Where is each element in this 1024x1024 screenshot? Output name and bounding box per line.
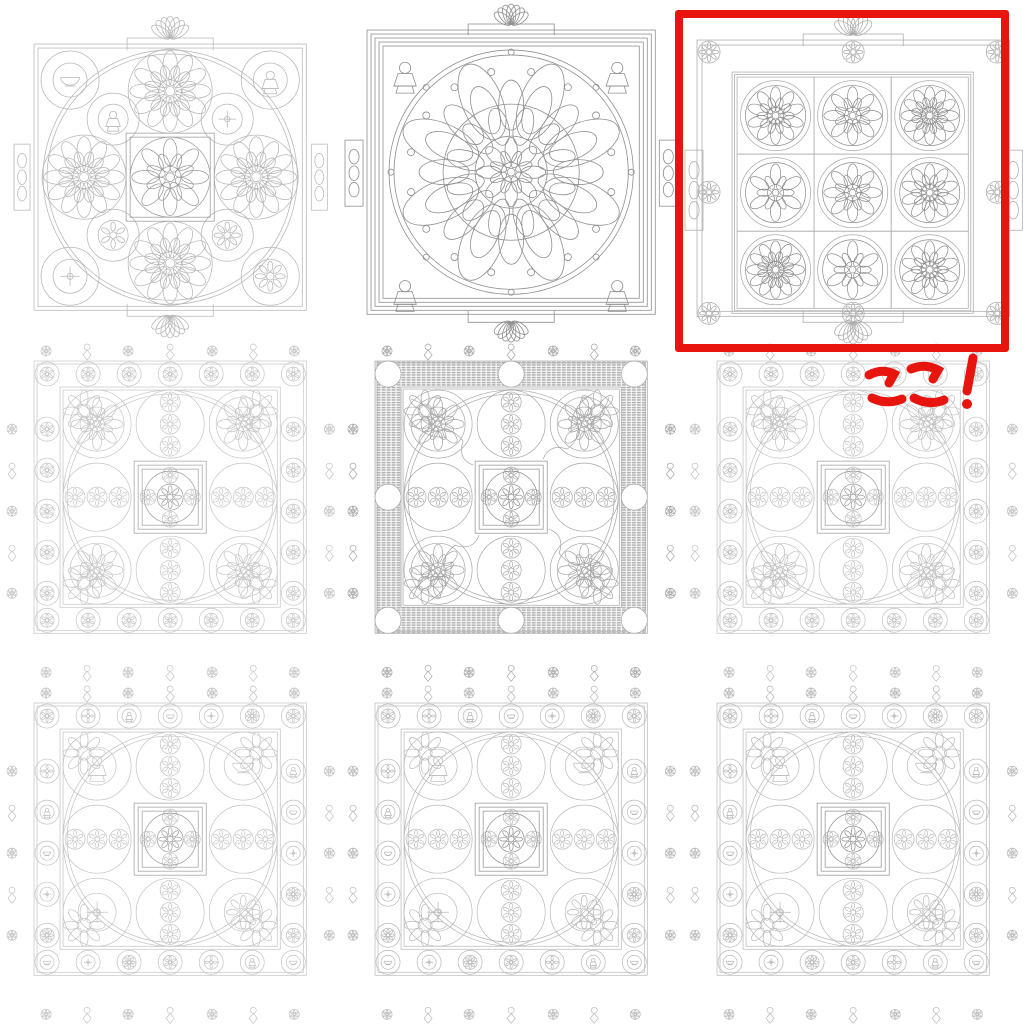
mandala-thumbnail-1[interactable]	[0, 0, 341, 341]
mandala-ring-nine-medallions-art	[0, 0, 341, 341]
mandala-circle-border-right-art	[683, 341, 1024, 682]
mandala-symbol-border-middle-art	[341, 683, 682, 1024]
mandala-thumbnail-4[interactable]	[0, 341, 341, 682]
mandala-symbol-border-left-art	[0, 683, 341, 1024]
mandala-round-ornate-art	[341, 0, 682, 341]
mandala-thumbnail-2[interactable]	[341, 0, 682, 341]
mandala-thumbnail-5[interactable]	[341, 341, 682, 682]
mandala-thumbnail-8[interactable]	[341, 683, 682, 1024]
mandala-symbol-border-right-art	[683, 683, 1024, 1024]
mandala-checker-border-art	[341, 341, 682, 682]
mandala-thumbnail-6[interactable]	[683, 341, 1024, 682]
mandala-grid-nine-flowers-art	[683, 0, 1024, 341]
mandala-circle-border-left-art	[0, 341, 341, 682]
mandala-gallery-grid	[0, 0, 1024, 1024]
mandala-thumbnail-9[interactable]	[683, 683, 1024, 1024]
mandala-thumbnail-7[interactable]	[0, 683, 341, 1024]
mandala-thumbnail-3-highlighted[interactable]	[683, 0, 1024, 341]
